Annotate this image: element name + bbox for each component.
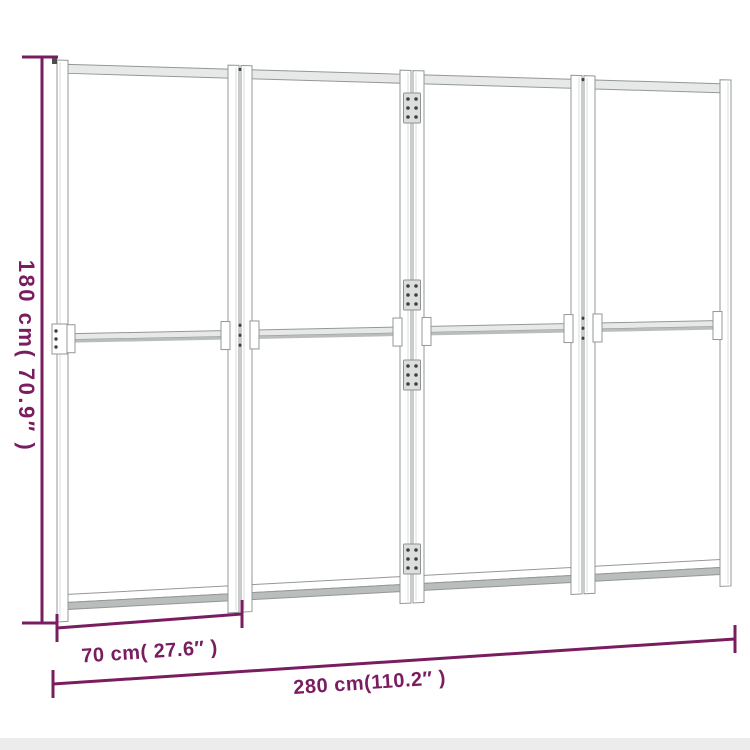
hinge-screw-dot	[406, 557, 410, 561]
hinge-screw-dot	[414, 373, 418, 377]
hinge-screw-dot	[406, 548, 410, 552]
crossbar-bracket	[564, 315, 573, 343]
hinge-screw-dot	[406, 293, 410, 297]
hinge-plate-body	[404, 280, 421, 310]
hinge-screw-dot	[414, 302, 418, 306]
room-divider-illustration: 180 cm( 70.9″ ) 70 cm( 27.6″ ) 280 cm(11…	[0, 0, 750, 750]
hinge-screw-dot	[414, 557, 418, 561]
hinge-screw-dot	[406, 302, 410, 306]
hinge-screw-dot	[414, 566, 418, 570]
hinge-plate	[404, 280, 421, 310]
hinge-screw-dot	[414, 115, 418, 119]
height-dimension-label: 180 cm( 70.9″ )	[14, 260, 39, 452]
crossbar-bracket	[422, 317, 431, 345]
hinge-pin-dot	[581, 327, 584, 330]
hinge-screw-dot	[414, 293, 418, 297]
mount-screw-dot	[54, 345, 57, 348]
panel-top-rail	[68, 64, 228, 78]
crossbar-bracket	[593, 314, 602, 342]
mount-screw-dot	[54, 329, 57, 332]
hinge-screw-dot	[406, 566, 410, 570]
divider-panels	[52, 58, 731, 622]
mount-screw-dot	[54, 337, 57, 340]
product-dimension-diagram: 180 cm( 70.9″ ) 70 cm( 27.6″ ) 280 cm(11…	[0, 0, 750, 750]
hinge-plate	[404, 93, 421, 123]
hinge-plate-body	[404, 360, 421, 390]
panel-top-rail	[424, 75, 571, 88]
hinge-plate-body	[404, 544, 421, 574]
panel-width-dimension-label: 70 cm( 27.6″ )	[81, 637, 219, 668]
hinge-screw-dot	[406, 373, 410, 377]
hinge-screw-dot	[414, 97, 418, 101]
hinge-screw-dot	[414, 382, 418, 386]
panel-1	[57, 60, 239, 622]
hinge-pin-dot	[238, 344, 241, 347]
panel-width-dimension-line	[57, 614, 242, 628]
crossbar-bracket	[221, 322, 230, 350]
panel-4	[584, 76, 731, 594]
hinge-plate-body	[404, 93, 421, 123]
hinge-screw-dot	[406, 97, 410, 101]
hinge-screw-dot	[414, 548, 418, 552]
hinge-screw-dot	[414, 284, 418, 288]
panel-top-rail	[595, 80, 720, 93]
panel-top-rail	[252, 70, 400, 83]
hinge-screw-dot	[406, 364, 410, 368]
hinge-pin-dot	[581, 78, 584, 81]
total-width-dimension-label: 280 cm(110.2″ )	[293, 667, 447, 699]
hinge-screw-dot	[406, 284, 410, 288]
hinge-screw-dot	[414, 364, 418, 368]
hinge-plate	[404, 360, 421, 390]
hinge-screw-dot	[406, 106, 410, 110]
crossbar-bracket	[250, 321, 259, 349]
panel-2	[241, 65, 411, 612]
height-dimension: 180 cm( 70.9″ )	[14, 57, 58, 623]
hinge-pin-dot	[238, 324, 241, 327]
mount-bracket-plate	[52, 324, 67, 354]
hinge-pin-dot	[238, 334, 241, 337]
crossbar-bracket	[393, 318, 402, 346]
hinge-pin-dot	[238, 68, 241, 71]
panel-width-dimension: 70 cm( 27.6″ )	[57, 600, 242, 668]
hinge-pin-dot	[581, 337, 584, 340]
top-left-hinge-pin	[52, 58, 57, 64]
hinge-plate	[404, 544, 421, 574]
hinge-screw-dot	[406, 115, 410, 119]
left-mount-bracket	[52, 324, 67, 354]
crossbar-bracket	[713, 312, 722, 340]
hinge-pin-dot	[581, 317, 584, 320]
image-bottom-strip	[0, 738, 750, 750]
hinge-screw-dot	[414, 106, 418, 110]
panel-3	[413, 71, 582, 603]
hinge-screw-dot	[406, 382, 410, 386]
